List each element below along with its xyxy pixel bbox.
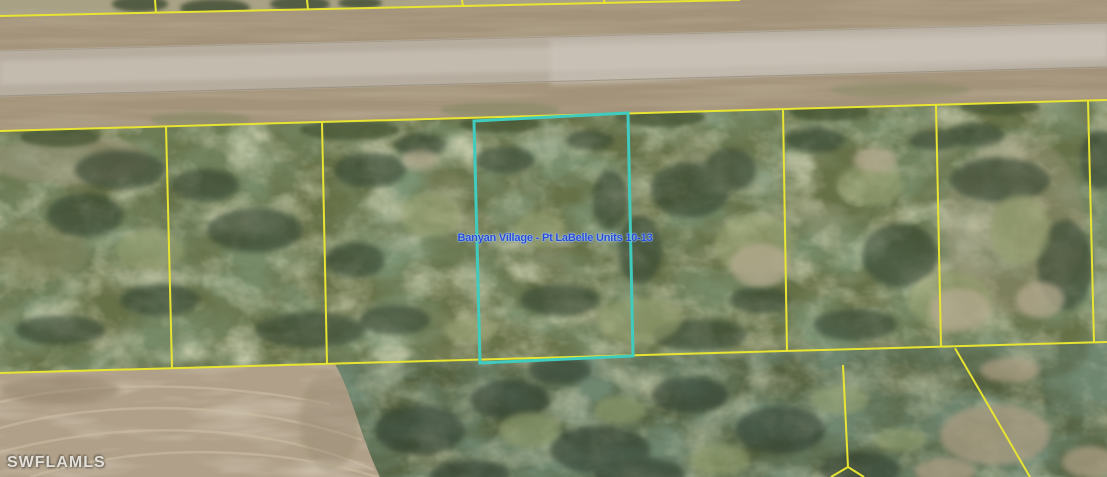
listing-aerial-image: Banyan Village - Pt LaBelle Units 10-13 … — [0, 0, 1107, 477]
cleared-field — [0, 360, 400, 477]
aerial-photo — [0, 0, 1107, 477]
